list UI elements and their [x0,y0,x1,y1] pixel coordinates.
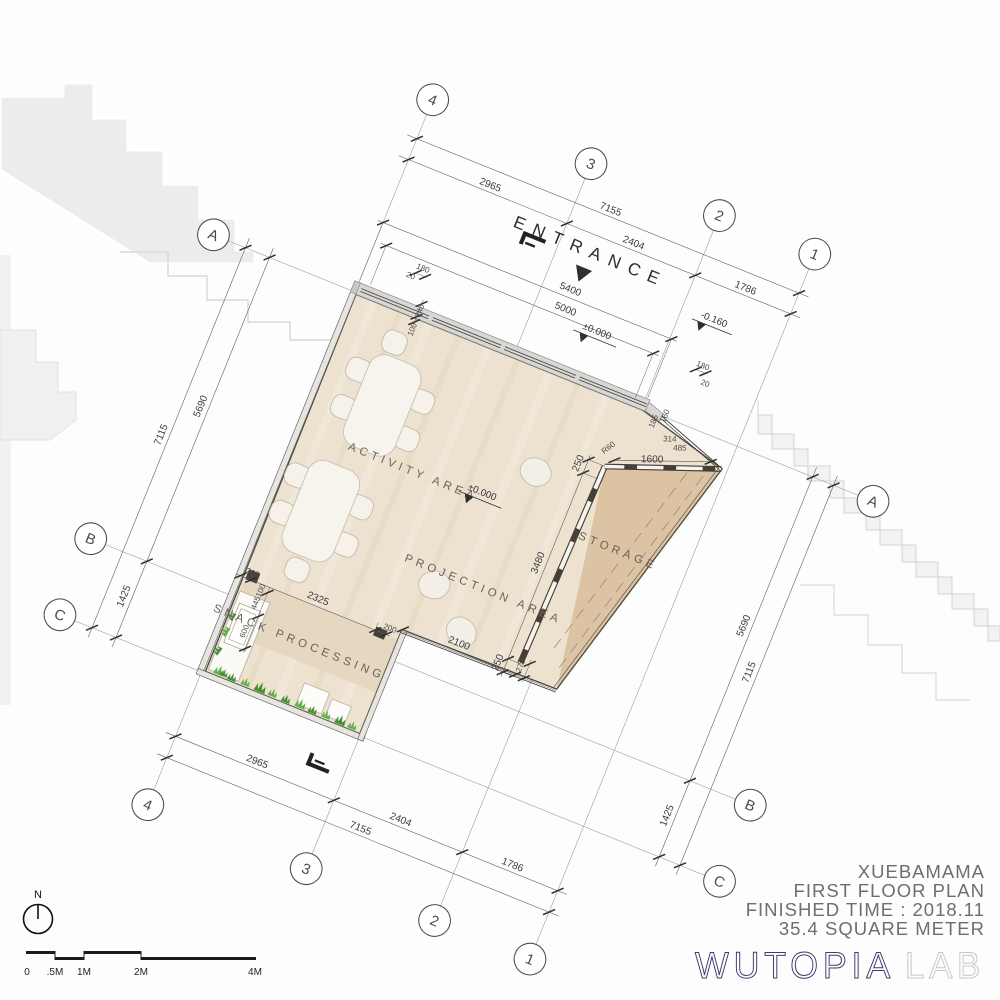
finished-time: FINISHED TIME : 2018.11 [746,899,985,920]
dim-right-total: 7115 [740,660,758,685]
logo-wutopia: WUTOPIA [695,945,895,986]
floor-plan-drawing: 7155 2965 2404 1786 2965 2404 1786 7155 … [0,0,1000,1000]
dim-bottom-seg-1: 2965 [245,753,270,772]
dim-top-seg-1: 2965 [478,176,503,195]
dim-bottom-seg-2: 2404 [388,811,413,830]
dim-right-seg-2: 1425 [658,803,677,828]
drawing-name: FIRST FLOOR PLAN [794,880,985,901]
logo: WUTOPIA LAB [695,945,985,986]
level-marker-outside: -0.160 [689,307,736,343]
right-silhouette-echo [800,585,970,700]
dim-entrance-inner: 5000 [553,300,578,319]
left-edge-shade [0,255,11,705]
dim-entrance-outer: 5400 [558,281,583,300]
dim-storage-wall: 1600 [641,454,664,465]
area-text: 35.4 SQUARE METER [779,918,985,939]
level-marker-entry: ±0.000 [570,318,621,355]
scale-05m: .5M [47,967,64,978]
dim-small-180-left: 180 [415,262,431,276]
dim-small-314: 314 [663,434,677,443]
dim-top-seg-2: 2404 [621,234,646,253]
logo-lab: LAB [905,945,985,986]
section-mark-bottom [306,752,333,773]
dim-small-20-left: 20 [405,270,417,282]
dim-right-seg-1: 5690 [735,613,754,638]
floor-plan-canvas: 7155 2965 2404 1786 2965 2404 1786 7155 … [0,0,1000,1000]
north-arrow: N [24,889,53,934]
scale-1m: 1M [77,967,91,978]
scale-4m: 4M [248,967,262,978]
dim-small-160: 160 [658,408,672,424]
entrance-label: ENTRANCE [511,212,671,292]
entrance-arrow-icon [570,265,592,285]
project-name: XUEBAMAMA [858,861,985,882]
dim-bottom-total: 7155 [348,820,373,839]
dim-small-180-right: 180 [695,359,711,373]
left-building-silhouette [0,330,76,440]
dim-left-seg-1: 5690 [192,394,211,419]
scale-0: 0 [24,967,30,978]
dim-small-485: 485 [673,443,687,452]
title-block: XUEBAMAMA FIRST FLOOR PLAN FINISHED TIME… [746,861,985,939]
scale-bar: 0 .5M 1M 2M 4M [24,951,262,978]
dim-left-total: 7115 [152,422,170,447]
dim-bottom-seg-3: 1786 [500,856,525,875]
dim-top-total: 7155 [598,201,623,220]
dim-left-seg-2: 1425 [115,584,134,609]
dim-top-seg-3: 1786 [733,279,758,298]
north-label: N [34,889,42,901]
dim-small-20-right: 20 [699,378,711,390]
scale-2m: 2M [134,967,148,978]
level-triangle-icon [694,321,706,332]
right-building-silhouette [758,400,1000,641]
building [196,281,736,828]
level-triangle-icon [576,332,588,343]
